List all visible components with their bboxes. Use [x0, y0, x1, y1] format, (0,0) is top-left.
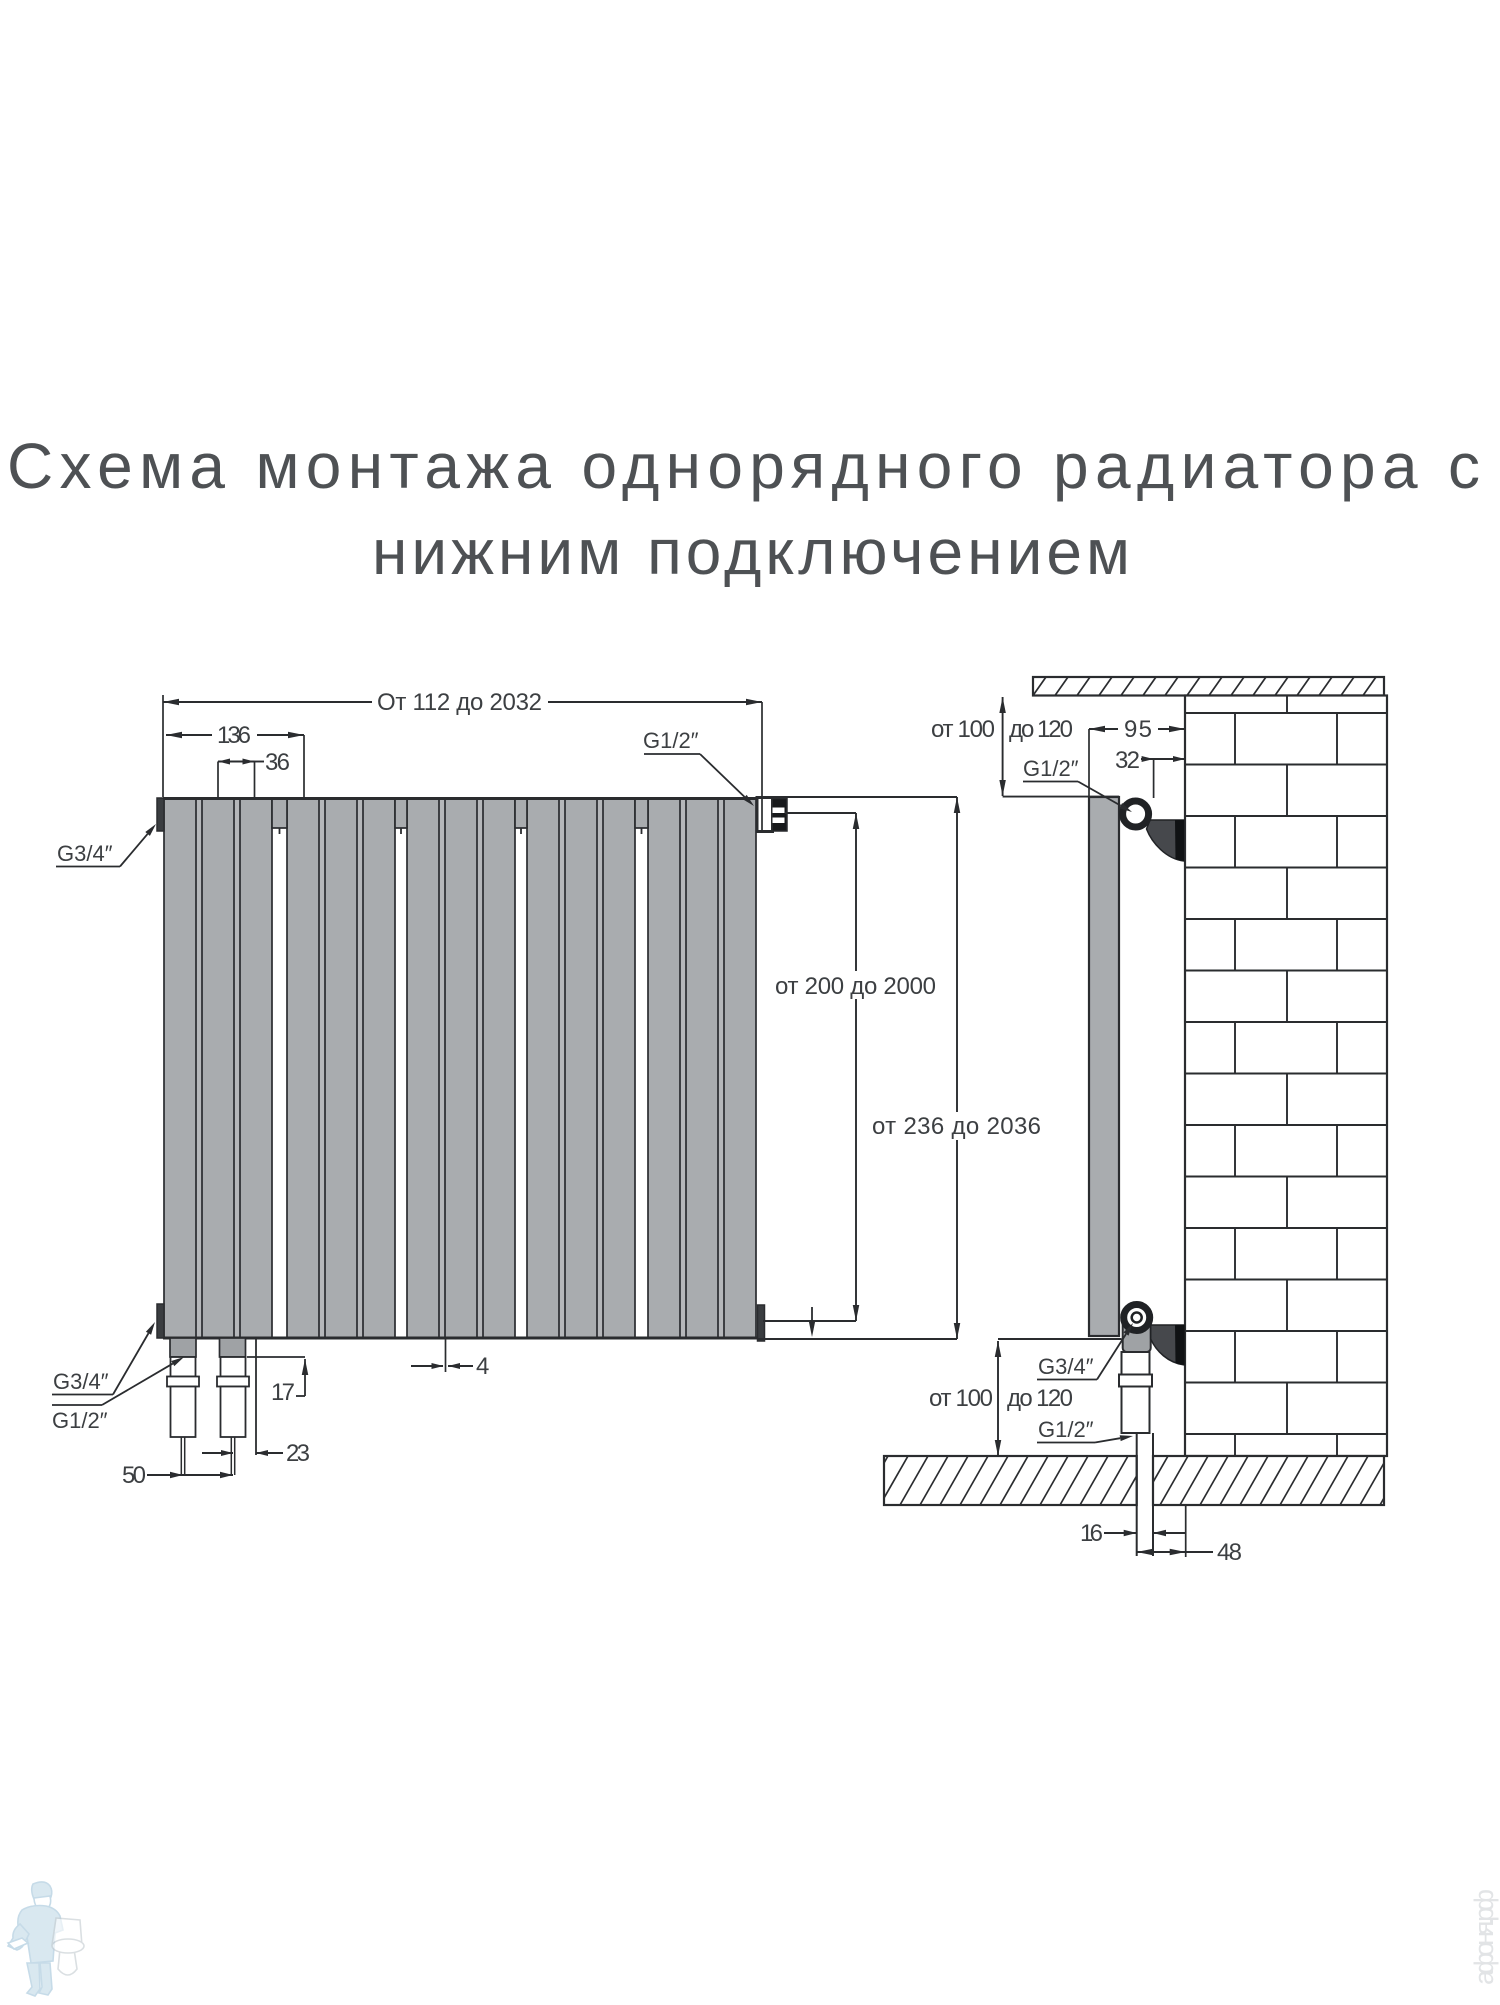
svg-text:G3/4″: G3/4″ [1038, 1354, 1094, 1379]
svg-text:G1/2″: G1/2″ [1023, 756, 1079, 781]
svg-text:От 112 до 2032: От 112 до 2032 [377, 689, 542, 716]
svg-text:до 120: до 120 [1007, 1385, 1073, 1412]
svg-text:4: 4 [476, 1353, 489, 1380]
svg-text:36: 36 [265, 749, 290, 776]
svg-text:до 120: до 120 [1009, 716, 1073, 743]
svg-text:16: 16 [1080, 1520, 1103, 1547]
svg-text:от 200 до 2000: от 200 до 2000 [775, 973, 936, 1000]
svg-text:G1/2″: G1/2″ [643, 728, 699, 753]
svg-text:95: 95 [1124, 716, 1152, 743]
svg-text:от 236 до 2036: от 236 до 2036 [872, 1113, 1041, 1140]
svg-text:17: 17 [271, 1379, 295, 1406]
svg-text:от 100: от 100 [929, 1385, 993, 1412]
svg-text:G3/4″: G3/4″ [53, 1369, 109, 1394]
svg-text:32: 32 [1115, 747, 1140, 774]
svg-text:G1/2″: G1/2″ [52, 1408, 108, 1433]
svg-text:G3/4″: G3/4″ [57, 841, 113, 866]
svg-text:23: 23 [286, 1440, 310, 1467]
svg-text:нижним подключением: нижним подключением [372, 516, 1130, 588]
svg-text:G1/2″: G1/2″ [1038, 1417, 1094, 1442]
svg-text:50: 50 [122, 1462, 146, 1489]
svg-text:афоня.рф: афоня.рф [1469, 1889, 1499, 1985]
svg-text:136: 136 [217, 722, 251, 749]
svg-text:от 100: от 100 [931, 716, 995, 743]
svg-text:48: 48 [1217, 1539, 1242, 1566]
